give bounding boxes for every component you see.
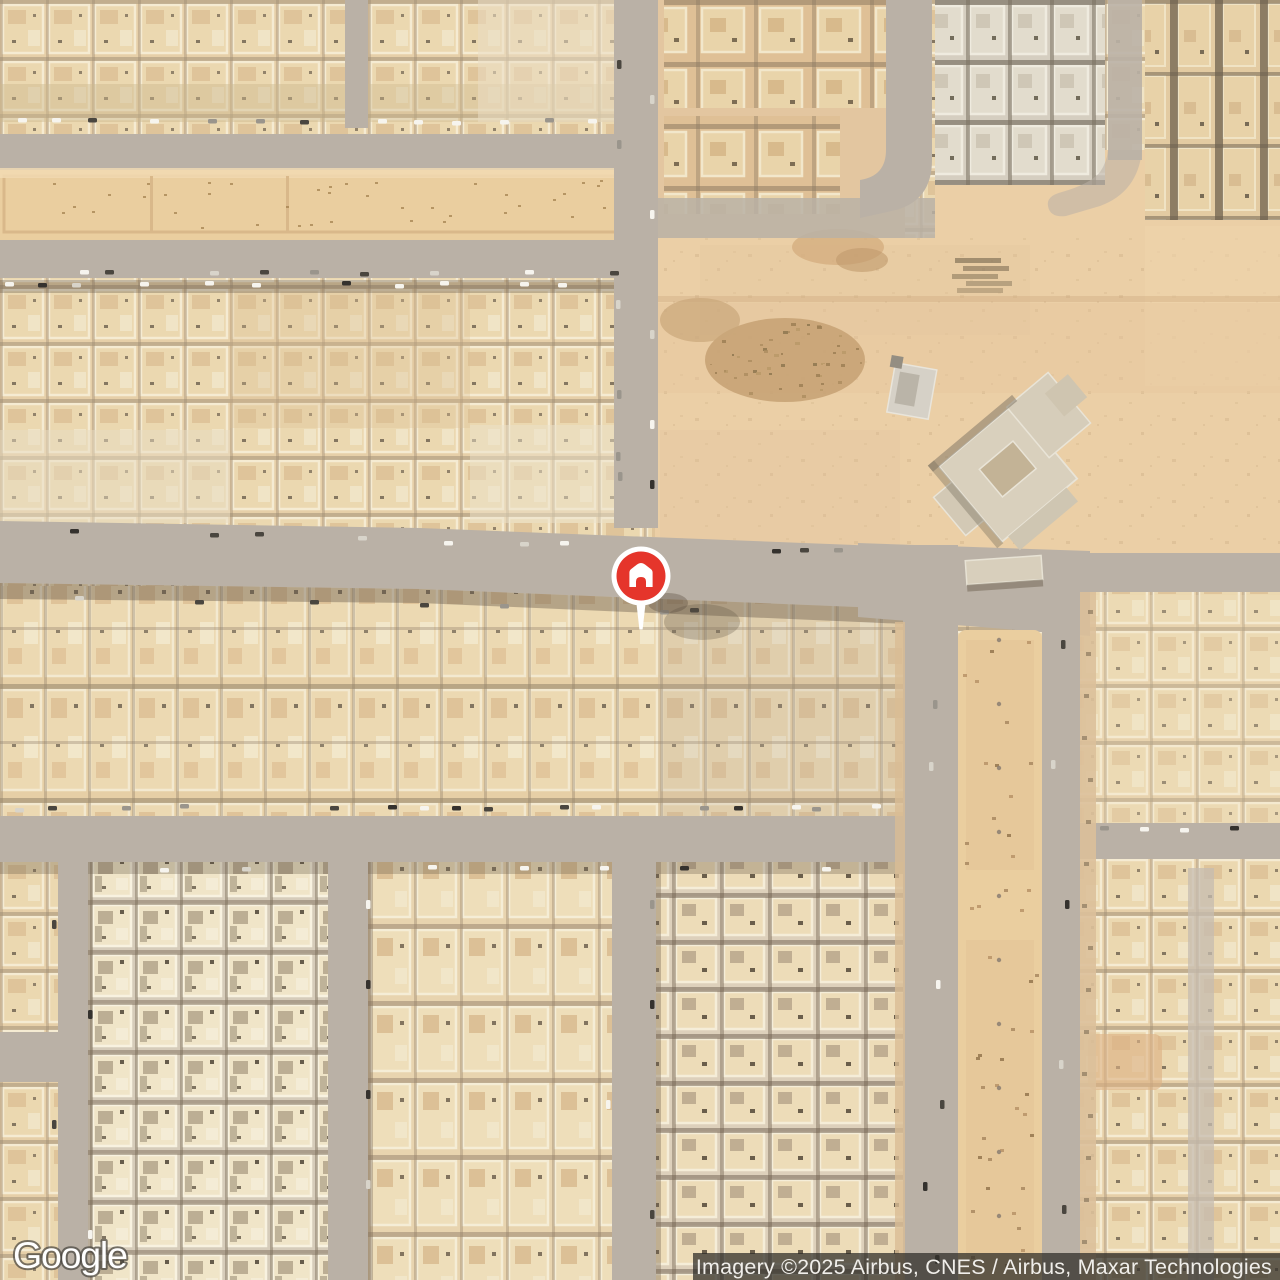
svg-text:Google: Google	[13, 1234, 127, 1276]
svg-text:Imagery ©2025 Airbus, CNES / A: Imagery ©2025 Airbus, CNES / Airbus, Max…	[696, 1255, 1272, 1279]
